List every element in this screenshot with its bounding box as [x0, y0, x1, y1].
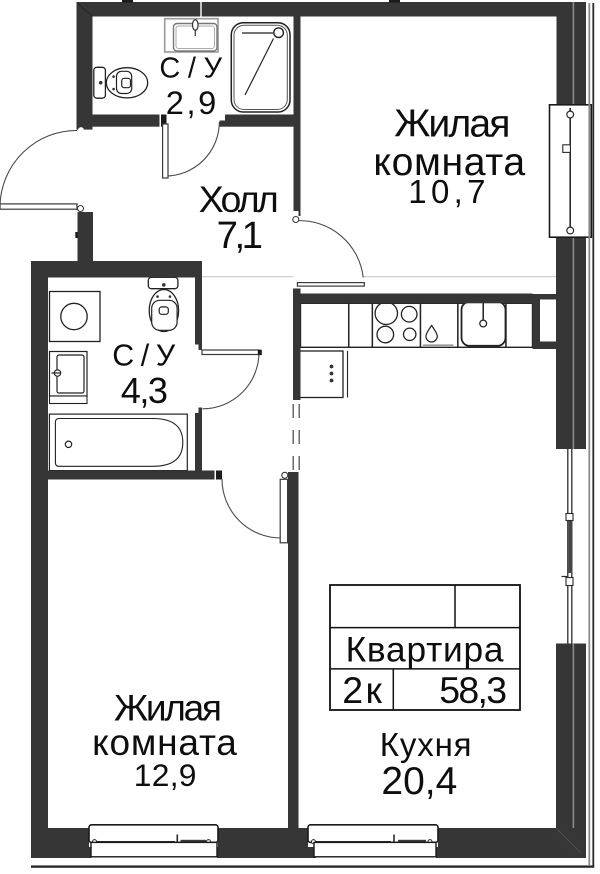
svg-text:7,1: 7,1 [217, 214, 262, 257]
svg-text:Кухня: Кухня [380, 726, 473, 763]
svg-text:С/У: С/У [112, 339, 182, 373]
svg-text:4,3: 4,3 [121, 370, 167, 411]
svg-text:12,9: 12,9 [134, 757, 197, 793]
svg-text:2,9: 2,9 [166, 84, 219, 121]
svg-text:Жилая: Жилая [394, 103, 508, 146]
svg-text:Квартира: Квартира [346, 631, 505, 670]
svg-text:58,3: 58,3 [439, 669, 506, 711]
svg-text:10,7: 10,7 [408, 173, 489, 210]
svg-text:20,4: 20,4 [381, 760, 457, 803]
svg-text:2к: 2к [342, 669, 384, 711]
svg-text:С/У: С/У [159, 53, 229, 85]
